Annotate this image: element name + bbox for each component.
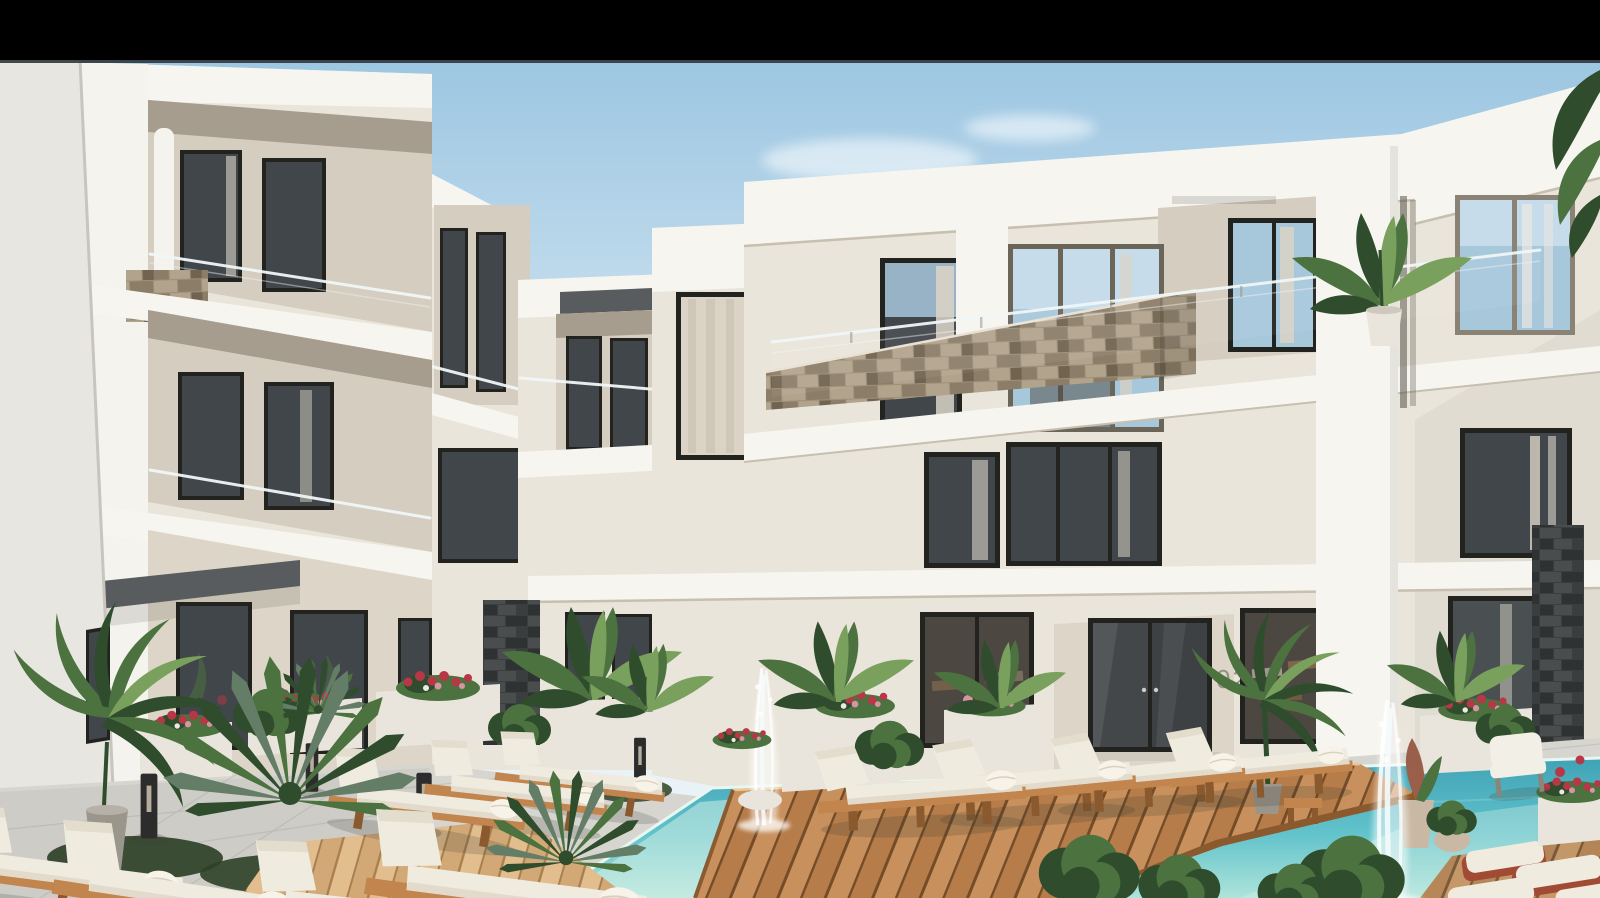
letterbox bbox=[0, 0, 1600, 63]
dark-stone-pillar bbox=[1532, 525, 1584, 765]
top-black-bar bbox=[0, 0, 1600, 60]
architectural-render: 02 bbox=[0, 0, 1600, 898]
side-table bbox=[1284, 798, 1322, 808]
dark-pergola-canopy bbox=[560, 288, 652, 314]
mid-window-a bbox=[924, 452, 1000, 568]
mid-window-b bbox=[1006, 442, 1162, 566]
